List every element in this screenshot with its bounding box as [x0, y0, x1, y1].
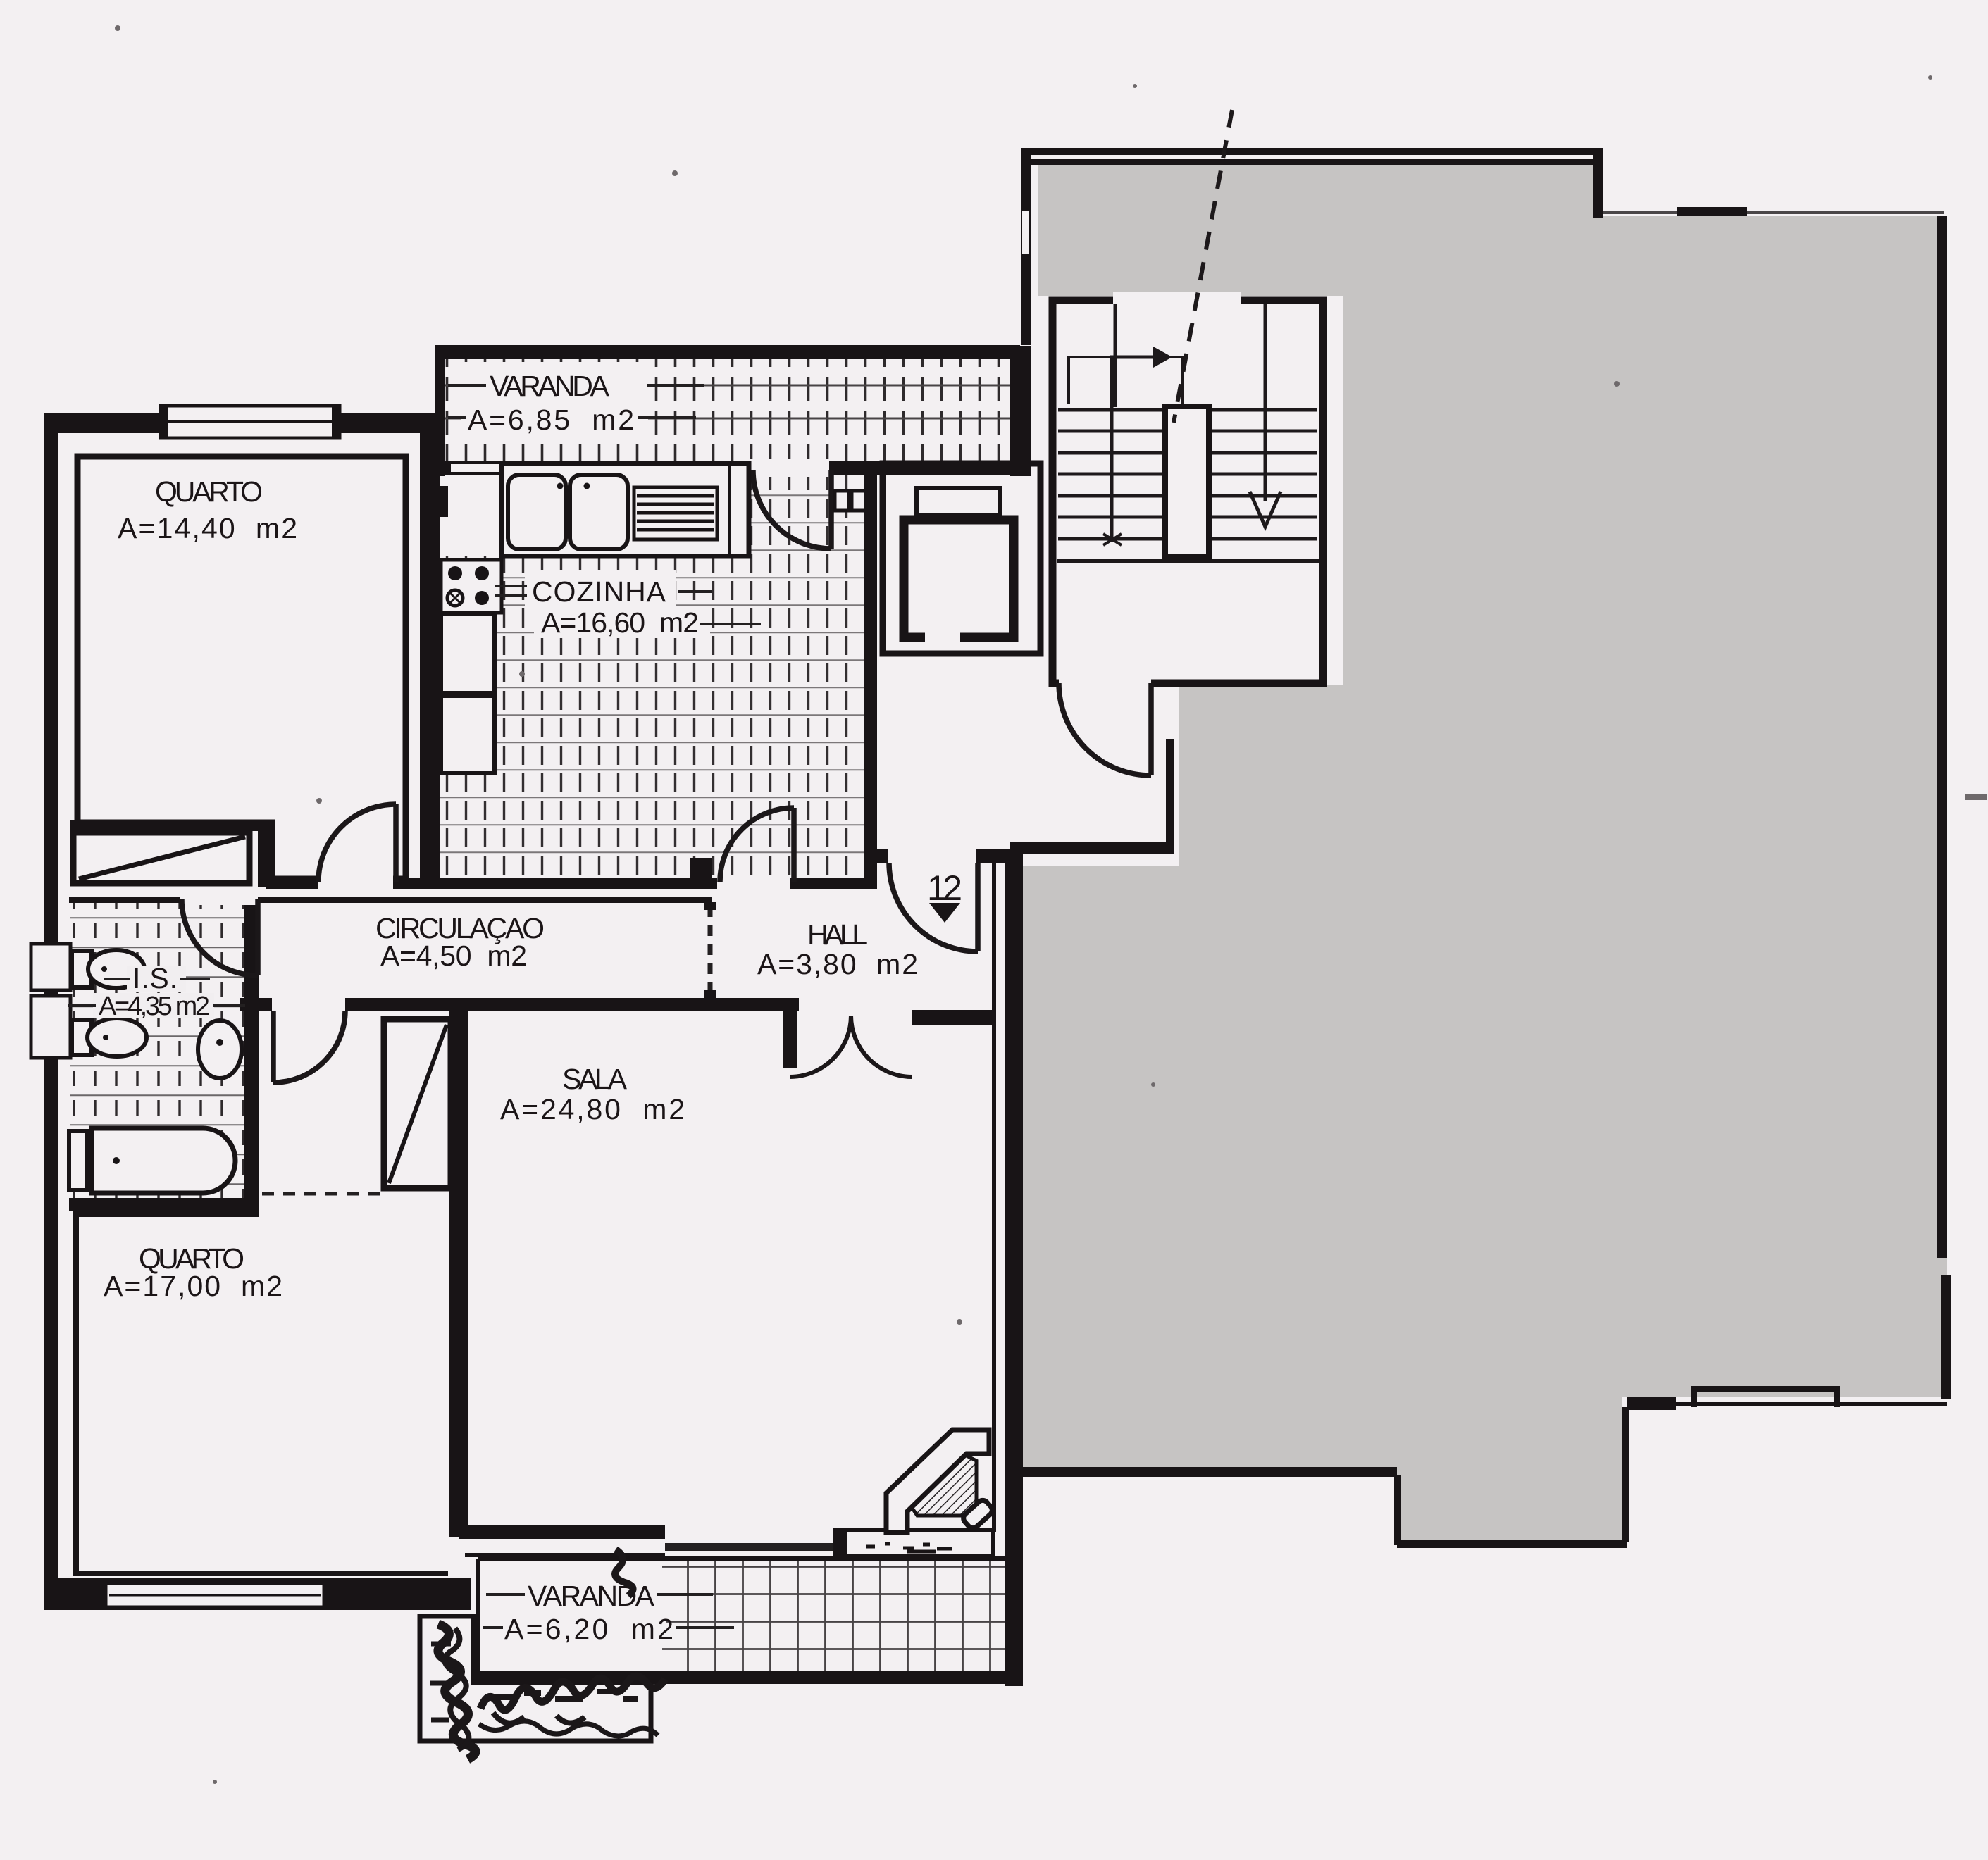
svg-text:A=16,60 m2: A=16,60 m2 [541, 606, 699, 639]
svg-text:A=6,85 m2: A=6,85 m2 [468, 404, 634, 436]
svg-text:A=6,20 m2: A=6,20 m2 [504, 1613, 673, 1645]
svg-text:QUARTO: QUARTO [155, 475, 263, 508]
svg-text:A=4,50 m2: A=4,50 m2 [380, 940, 527, 972]
svg-text:A=14,40 m2: A=14,40 m2 [118, 512, 297, 544]
svg-text:A=4,35 m2: A=4,35 m2 [99, 992, 210, 1021]
svg-text:I.S.: I.S. [132, 962, 178, 994]
svg-text:SALA: SALA [562, 1063, 628, 1095]
svg-text:12: 12 [927, 868, 962, 908]
svg-text:VARANDA: VARANDA [528, 1580, 655, 1612]
svg-text:A=3,80 m2: A=3,80 m2 [757, 948, 918, 980]
svg-text:HALL: HALL [807, 918, 868, 951]
svg-text:A=24,80 m2: A=24,80 m2 [500, 1093, 685, 1125]
svg-text:COZINHA: COZINHA [532, 575, 666, 608]
svg-text:A=17,00 m2: A=17,00 m2 [104, 1270, 282, 1302]
svg-text:VARANDA: VARANDA [490, 370, 610, 402]
